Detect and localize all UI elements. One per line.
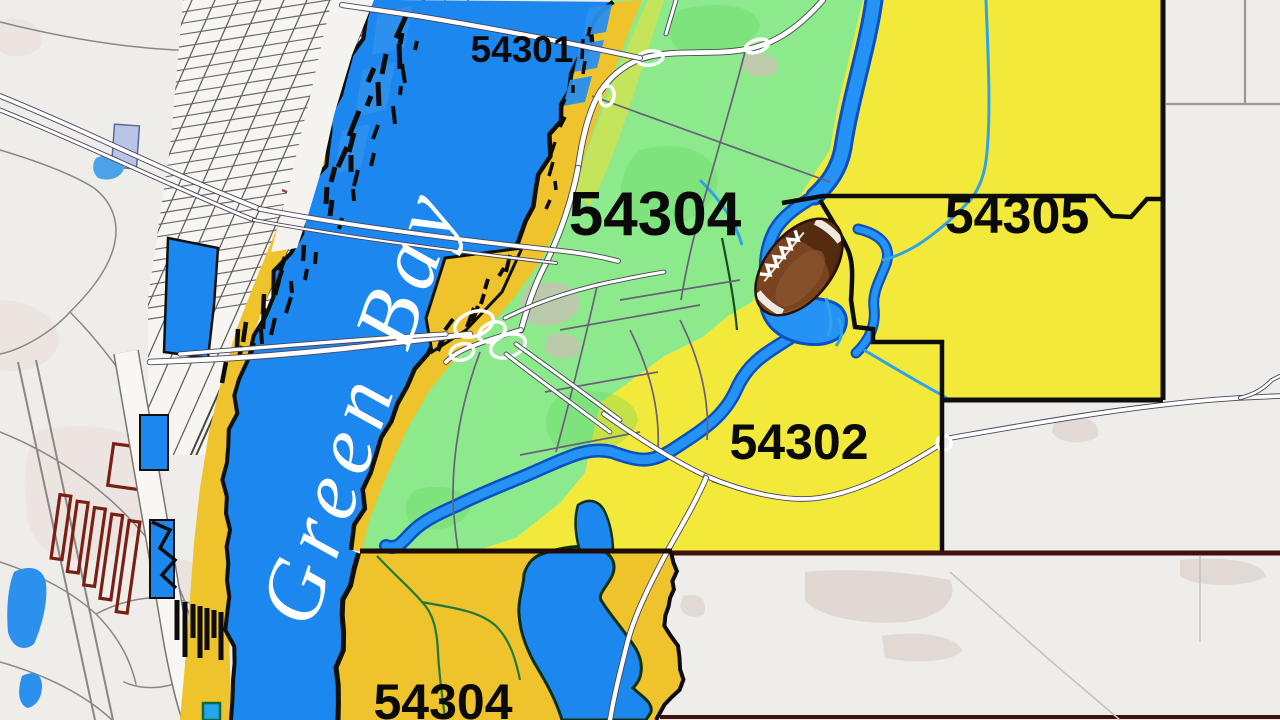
svg-text:54305: 54305 (945, 187, 1090, 245)
svg-text:54304: 54304 (569, 180, 742, 249)
svg-text:54304: 54304 (373, 674, 512, 720)
svg-text:54301: 54301 (471, 29, 574, 70)
svg-text:54302: 54302 (729, 414, 868, 470)
